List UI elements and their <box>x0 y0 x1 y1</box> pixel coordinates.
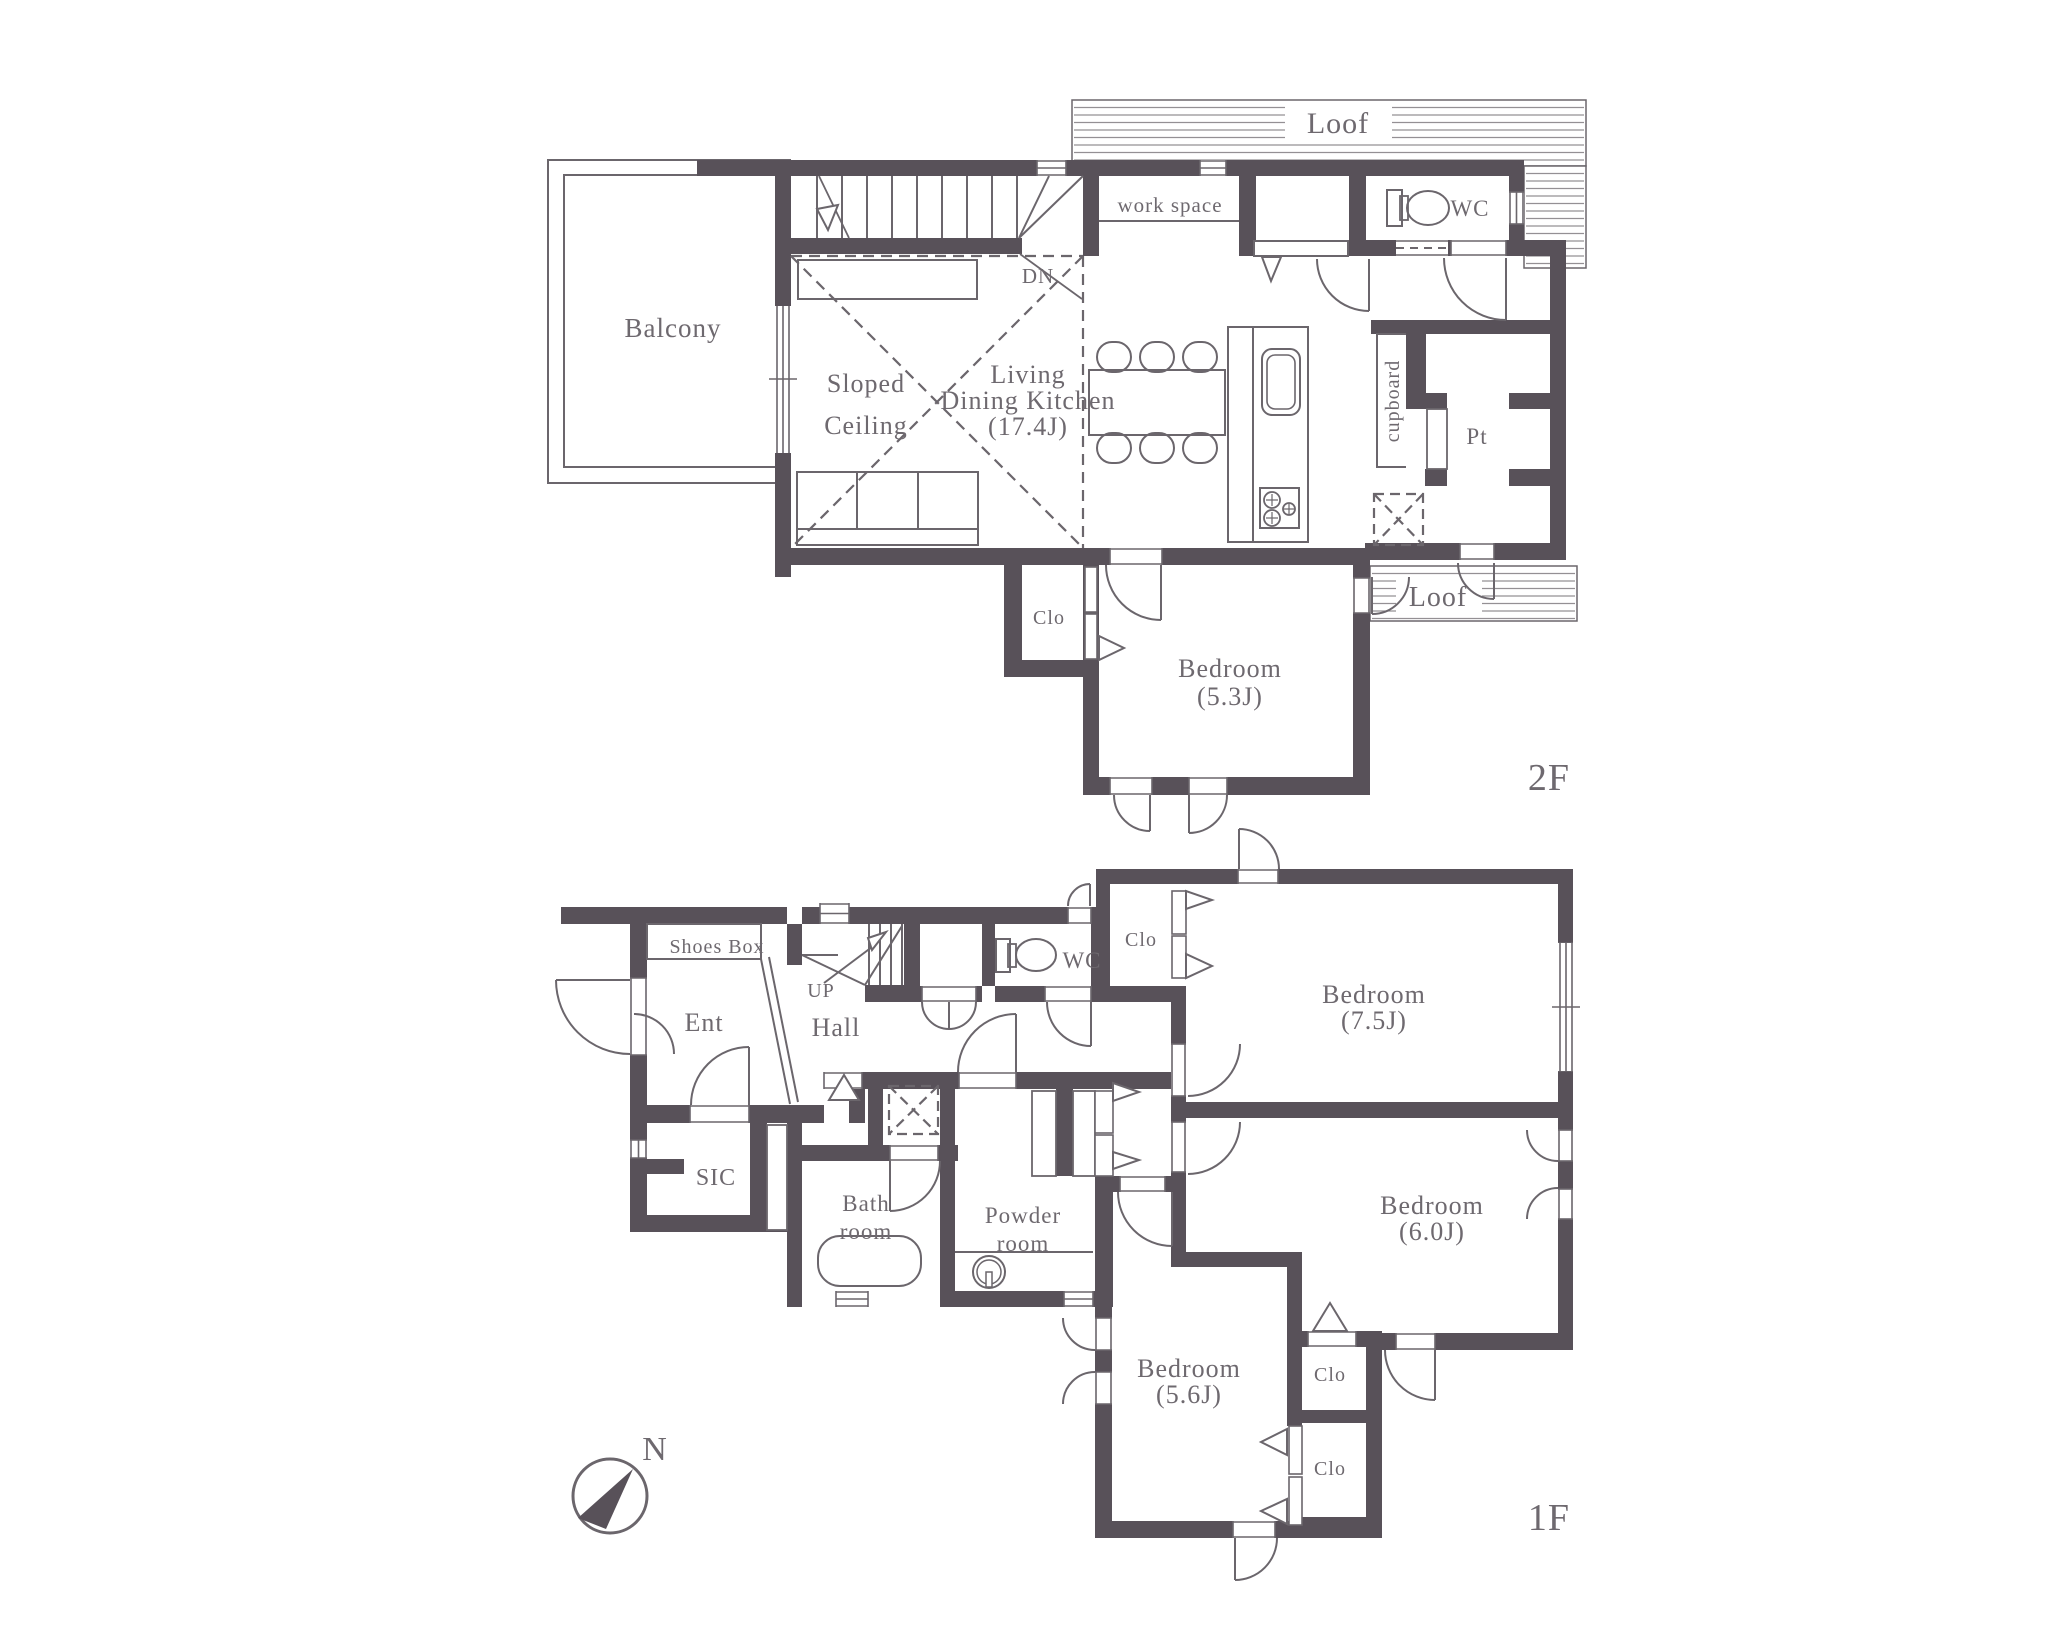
svg-text:cupboard: cupboard <box>1382 360 1404 442</box>
svg-text:room: room <box>997 1231 1050 1256</box>
svg-text:Hall: Hall <box>812 1013 861 1042</box>
svg-text:Loof: Loof <box>1409 582 1467 613</box>
svg-text:Loof: Loof <box>1307 107 1369 140</box>
svg-text:Pt: Pt <box>1466 424 1487 449</box>
svg-text:(5.6J): (5.6J) <box>1156 1380 1222 1409</box>
svg-text:Sloped: Sloped <box>827 369 905 398</box>
svg-text:(7.5J): (7.5J) <box>1341 1006 1407 1035</box>
svg-text:work space: work space <box>1117 193 1222 217</box>
svg-text:room: room <box>840 1219 893 1244</box>
svg-text:Clo: Clo <box>1125 929 1157 951</box>
svg-text:Clo: Clo <box>1033 607 1065 629</box>
svg-text:WC: WC <box>1450 196 1489 221</box>
svg-text:Clo: Clo <box>1314 1364 1346 1386</box>
svg-text:1F: 1F <box>1528 1497 1570 1539</box>
svg-text:Ent: Ent <box>684 1008 723 1037</box>
svg-text:Bedroom: Bedroom <box>1322 980 1426 1009</box>
svg-text:Clo: Clo <box>1314 1458 1346 1480</box>
svg-text:(5.3J): (5.3J) <box>1197 682 1263 711</box>
svg-text:Balcony: Balcony <box>625 313 722 343</box>
svg-text:(17.4J): (17.4J) <box>988 412 1068 441</box>
svg-text:Bath: Bath <box>842 1191 889 1216</box>
svg-text:Bedroom: Bedroom <box>1137 1354 1241 1383</box>
svg-text:Ceiling: Ceiling <box>824 411 908 440</box>
svg-text:(6.0J): (6.0J) <box>1399 1217 1465 1246</box>
svg-text:Living: Living <box>990 360 1065 389</box>
svg-text:UP: UP <box>807 980 835 1002</box>
svg-text:SIC: SIC <box>696 1165 736 1191</box>
svg-text:Bedroom: Bedroom <box>1178 654 1282 683</box>
svg-text:Powder: Powder <box>985 1203 1061 1228</box>
svg-text:N: N <box>642 1431 668 1468</box>
svg-text:Bedroom: Bedroom <box>1380 1191 1484 1220</box>
svg-text:2F: 2F <box>1528 757 1570 799</box>
svg-text:DN: DN <box>1022 264 1054 288</box>
svg-text:WC: WC <box>1062 948 1101 973</box>
svg-text:Shoes Box: Shoes Box <box>669 936 764 958</box>
